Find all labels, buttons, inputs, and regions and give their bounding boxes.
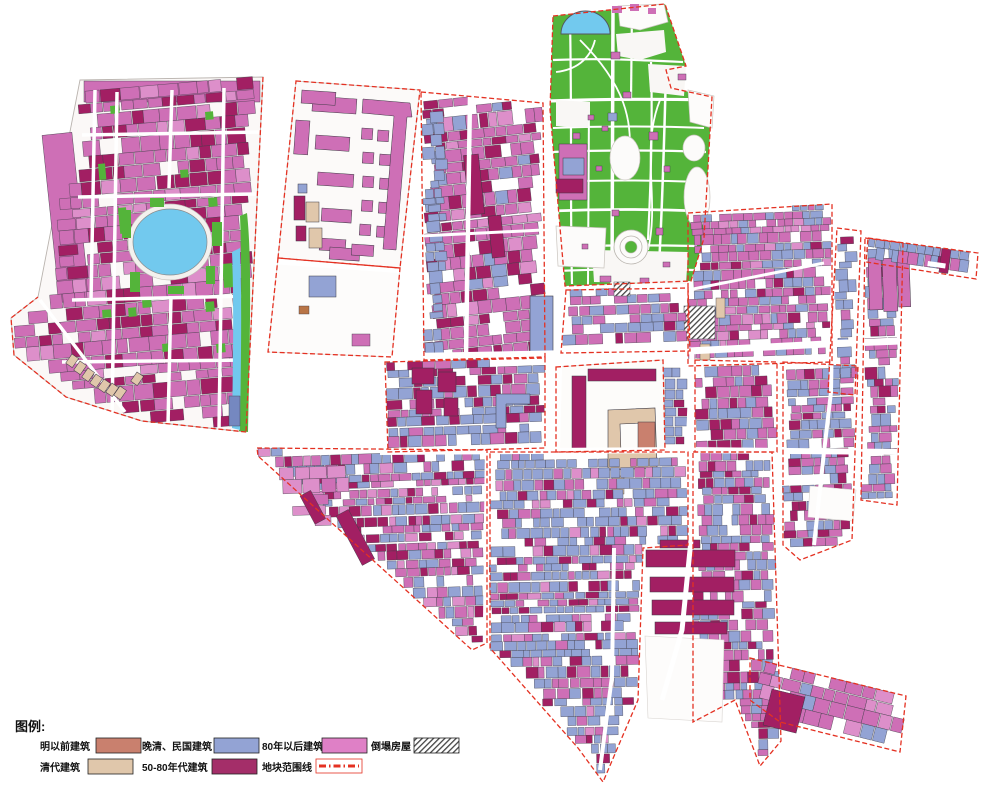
svg-text:80年以后建筑: 80年以后建筑 bbox=[262, 740, 323, 753]
svg-text:50-80年代建筑: 50-80年代建筑 bbox=[142, 761, 208, 774]
svg-text:地块范围线: 地块范围线 bbox=[262, 761, 312, 774]
svg-text:倒塌房屋: 倒塌房屋 bbox=[370, 740, 411, 753]
svg-text:明以前建筑: 明以前建筑 bbox=[40, 740, 90, 753]
svg-text:晚清、民国建筑: 晚清、民国建筑 bbox=[142, 740, 212, 753]
svg-text:清代建筑: 清代建筑 bbox=[40, 761, 80, 774]
svg-text:图例:: 图例: bbox=[15, 719, 45, 734]
